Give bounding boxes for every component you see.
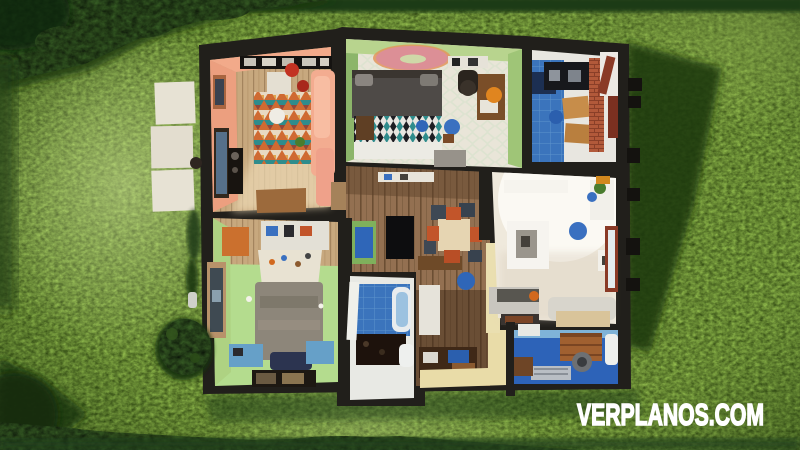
svg-text:VERPLANOS.COM: VERPLANOS.COM [577, 397, 764, 432]
